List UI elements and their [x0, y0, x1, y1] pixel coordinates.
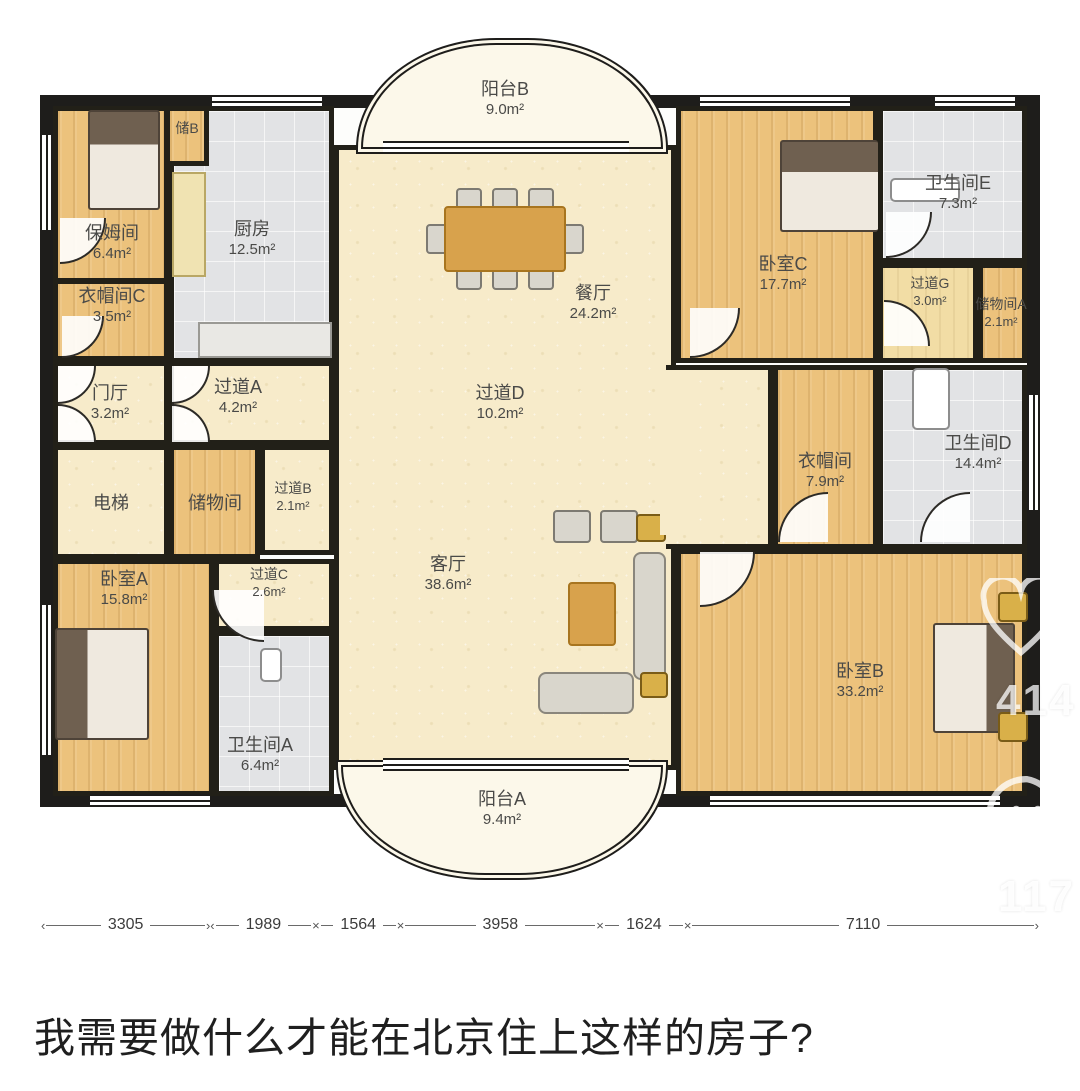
- bath-d-fixture: [912, 368, 950, 430]
- dim-tick: ×: [595, 918, 605, 933]
- window-bedroom-a-left: [40, 605, 53, 755]
- side-table-bottom: [640, 672, 668, 698]
- window-bedroom-c-top: [700, 95, 850, 108]
- dining-table: [444, 206, 566, 272]
- bed-bedroom-a: [55, 628, 149, 740]
- armchair: [553, 510, 591, 543]
- room-balcony-a: [336, 760, 668, 880]
- window-nanny-left: [40, 135, 53, 230]
- dimension-segment: 1989: [216, 916, 311, 934]
- bed-nanny: [88, 110, 160, 210]
- bed-bedroom-c: [780, 140, 878, 232]
- comment-bubble-icon[interactable]: [982, 772, 1072, 867]
- dim-tick: ×: [396, 918, 406, 933]
- window-bath-d-right: [1027, 395, 1040, 510]
- window-balcony-a: [383, 758, 629, 771]
- kitchen-counter-stove: [198, 322, 332, 358]
- window-balcony-b: [383, 141, 629, 154]
- passage-opening: [660, 380, 690, 535]
- window-kitchen-top: [212, 95, 322, 108]
- window-bedroom-a-bottom: [90, 794, 210, 807]
- room-balcony-b: [356, 38, 668, 154]
- like-heart-icon[interactable]: [980, 578, 1062, 663]
- sofa-small: [538, 672, 634, 714]
- dim-tick: ×: [683, 918, 693, 933]
- bath-e-vanity: [890, 178, 960, 202]
- dimension-segment: 7110: [692, 916, 1033, 934]
- room-hall-b: [260, 445, 334, 555]
- window-bath-e-top: [935, 95, 1015, 108]
- dimension-segment: 1564: [321, 916, 396, 934]
- sofa-long: [633, 552, 666, 680]
- armchair: [600, 510, 638, 543]
- room-storage-b: [165, 106, 209, 166]
- bath-a-fixture: [260, 648, 282, 682]
- window-bedroom-b-bottom: [710, 794, 1000, 807]
- room-storage: [169, 445, 260, 559]
- dim-tick: ×: [311, 918, 321, 933]
- like-count: 414: [996, 676, 1075, 726]
- kitchen-counter-sink: [172, 172, 206, 277]
- room-elevator: [53, 445, 169, 559]
- coffee-table: [568, 582, 616, 646]
- dimension-segment: 3958: [405, 916, 595, 934]
- room-storage-a: [978, 263, 1027, 363]
- dimension-line: ‹ 3305 ›‹ 1989 × 1564 × 3958 × 1624 × 71…: [40, 916, 1040, 934]
- dimension-segment: 3305: [46, 916, 205, 934]
- dimension-segment: 1624: [605, 916, 683, 934]
- caption-text: 我需要做什么才能在北京住上这样的房子?: [34, 1004, 1044, 1064]
- dim-tick: ›‹: [205, 918, 216, 933]
- comment-count: 117: [998, 872, 1075, 922]
